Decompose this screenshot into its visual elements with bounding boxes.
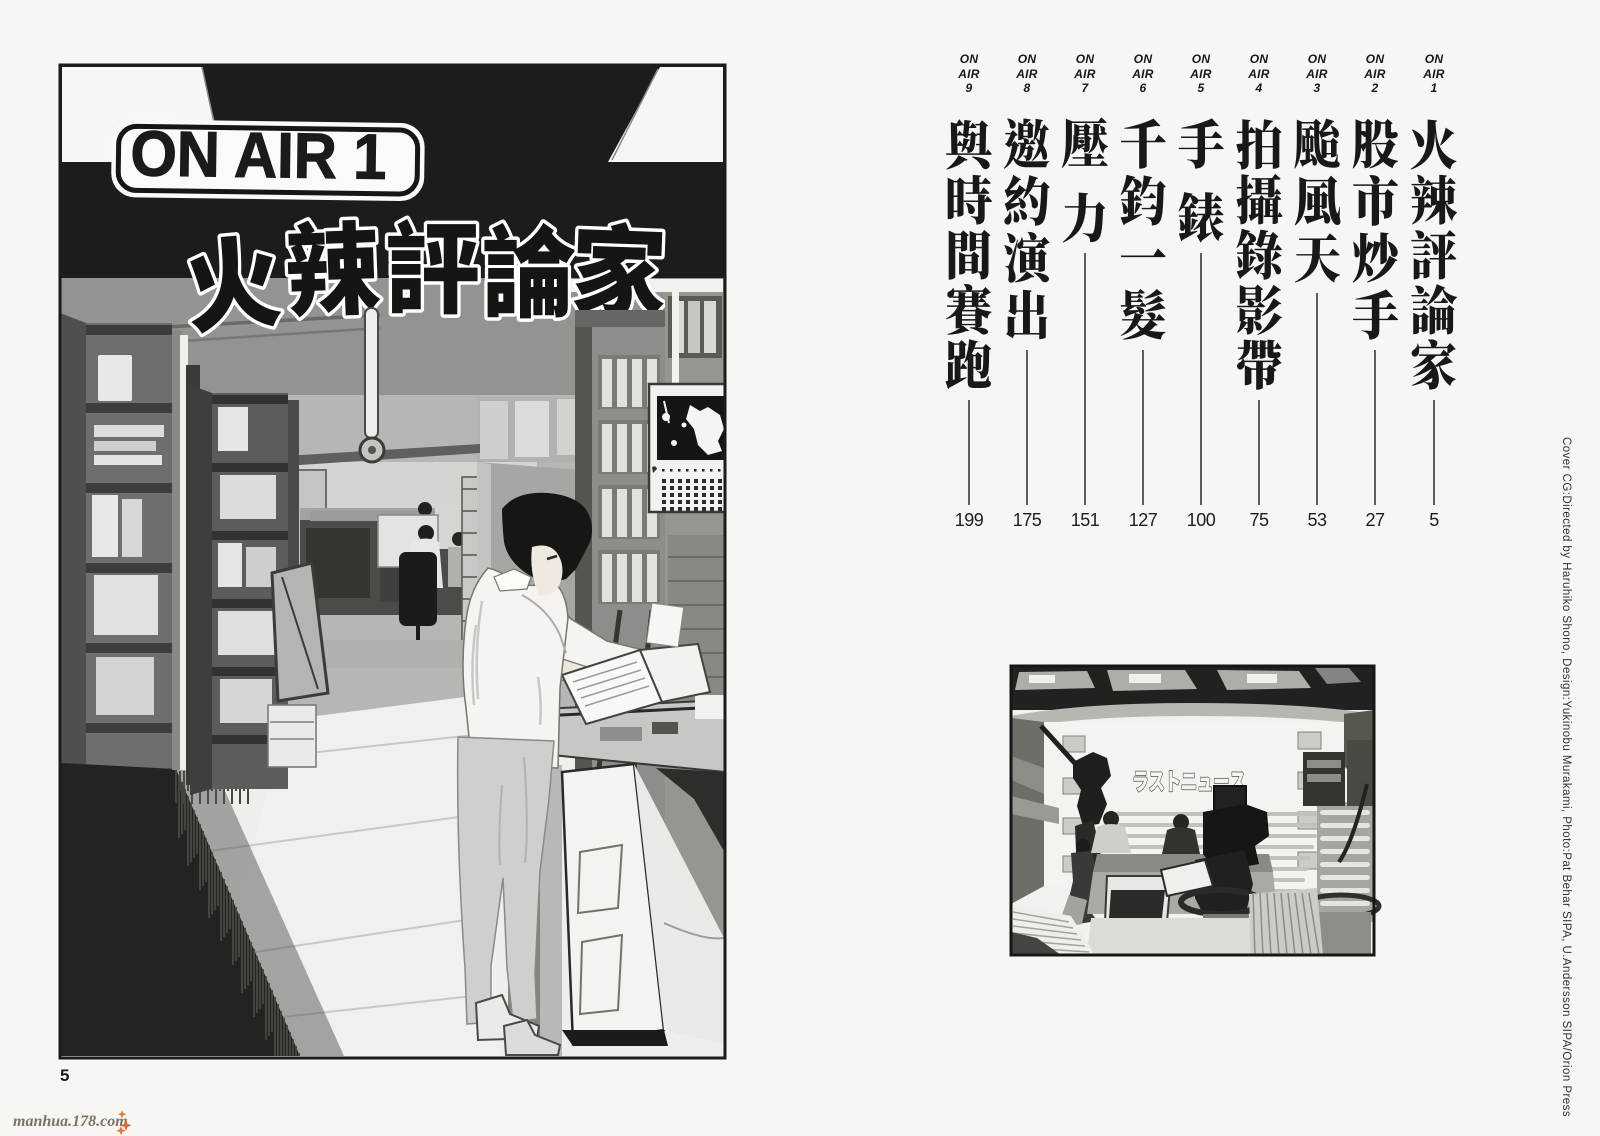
svg-text:ON AIR 1: ON AIR 1 <box>130 117 387 193</box>
